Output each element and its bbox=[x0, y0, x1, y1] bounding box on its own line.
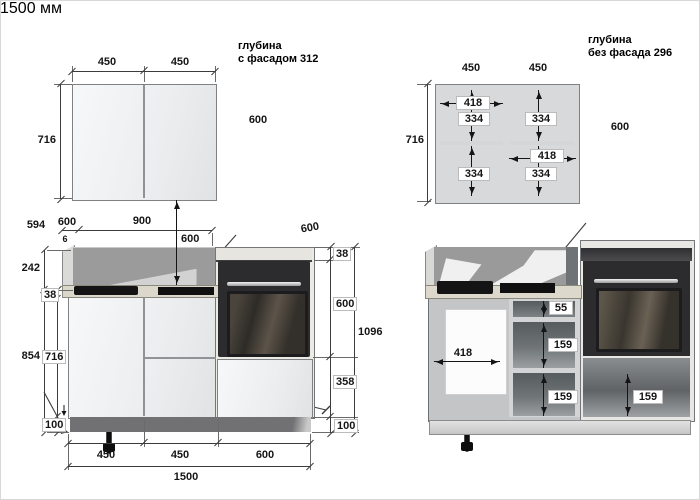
dim-arrow-gap-600 bbox=[176, 200, 177, 285]
note-line2: без фасада 296 bbox=[588, 47, 672, 60]
note-line1: глубина bbox=[238, 40, 318, 53]
dim-716: 716 bbox=[398, 134, 424, 146]
dim-chain-right bbox=[330, 247, 331, 433]
title-box: 1500 мм bbox=[0, 0, 700, 18]
ext-line bbox=[313, 417, 358, 418]
note-depth-no-facade: глубина без фасада 296 bbox=[588, 34, 672, 60]
oven-glass bbox=[227, 291, 308, 357]
plinth bbox=[70, 417, 311, 432]
ext-line bbox=[212, 233, 213, 246]
front-divider-horizontal bbox=[145, 357, 216, 359]
dim-arrow-159 bbox=[543, 374, 544, 416]
dim-854: 854 bbox=[16, 350, 40, 362]
plinth bbox=[429, 420, 691, 435]
dim-line-top bbox=[62, 230, 212, 231]
dim-1500: 1500 bbox=[164, 471, 208, 483]
dim-334: 334 bbox=[525, 167, 557, 181]
dim-159: 159 bbox=[548, 390, 578, 404]
dim-line-height bbox=[427, 84, 428, 202]
cooktop bbox=[500, 283, 555, 293]
dim-38: 38 bbox=[333, 247, 351, 261]
dim-1096: 1096 bbox=[358, 326, 388, 338]
sink bbox=[74, 286, 138, 295]
dim-arrow-159 bbox=[627, 374, 628, 416]
dim-159: 159 bbox=[633, 390, 663, 404]
dim-334: 334 bbox=[458, 112, 490, 126]
dim-6-arrowhead bbox=[62, 411, 67, 416]
oven-drawer-front bbox=[217, 359, 313, 418]
dim-450: 450 bbox=[87, 56, 127, 68]
oven-housing-top-band bbox=[581, 248, 692, 261]
faucet-base bbox=[461, 442, 473, 451]
dim-6: 6 bbox=[59, 233, 71, 245]
oven-housing-top bbox=[216, 248, 312, 262]
page-title: 1500 мм bbox=[0, 0, 62, 17]
note-line2: с фасадом 312 bbox=[238, 53, 318, 66]
oven-lower-opening bbox=[583, 358, 690, 417]
dim-159: 159 bbox=[548, 338, 578, 352]
dim-418: 418 bbox=[448, 347, 478, 359]
drawing-canvas: 1500 мм 450 450 716 600 глубина с фасадо… bbox=[0, 0, 700, 500]
dim-arrow-55 bbox=[543, 301, 544, 317]
dim-418: 418 bbox=[530, 149, 564, 163]
oven-handle bbox=[227, 282, 301, 286]
dim-450: 450 bbox=[518, 62, 558, 74]
dim-gap-600: 600 bbox=[181, 233, 207, 245]
dim-900: 900 bbox=[124, 215, 160, 227]
dim-334: 334 bbox=[525, 112, 557, 126]
backsplash-highlight bbox=[487, 250, 573, 287]
ext-line bbox=[313, 357, 358, 358]
dim-line-height bbox=[60, 84, 61, 199]
dim-242: 242 bbox=[16, 262, 40, 274]
dim-600-depth: 600 bbox=[50, 216, 84, 228]
backsplash bbox=[73, 247, 215, 288]
dim-450: 450 bbox=[451, 62, 491, 74]
dim-358: 358 bbox=[333, 375, 357, 389]
dim-716: 716 bbox=[30, 134, 56, 146]
dim-shelf-600: 600 bbox=[600, 121, 640, 133]
dim-line-segments bbox=[68, 443, 310, 444]
dim-55: 55 bbox=[549, 301, 573, 315]
dim-100: 100 bbox=[334, 419, 358, 433]
wall-cabinet-door-divider bbox=[143, 85, 145, 198]
dim-line-total-height bbox=[354, 247, 355, 433]
dim-594: 594 bbox=[24, 219, 48, 231]
dim-tick bbox=[322, 406, 330, 414]
dim-716: 716 bbox=[42, 350, 66, 364]
oven-handle bbox=[594, 279, 678, 283]
dim-line-total-width bbox=[68, 466, 310, 467]
dim-450: 450 bbox=[160, 449, 200, 461]
dim-600: 600 bbox=[242, 449, 288, 461]
note-depth-facade: глубина с фасадом 312 bbox=[238, 40, 318, 66]
ext-line bbox=[54, 84, 72, 85]
dim-shelf-600: 600 bbox=[238, 114, 278, 126]
dim-38: 38 bbox=[41, 288, 59, 302]
dim-arrow-418 bbox=[434, 361, 500, 362]
backsplash-shadow bbox=[566, 247, 578, 287]
dim-arrow-159 bbox=[543, 323, 544, 368]
oven-glass bbox=[596, 288, 682, 352]
ext-line bbox=[47, 250, 71, 251]
dim-600: 600 bbox=[333, 297, 357, 311]
dim-334: 334 bbox=[458, 167, 490, 181]
dim-418: 418 bbox=[456, 96, 490, 110]
dim-450: 450 bbox=[86, 449, 126, 461]
dim-450: 450 bbox=[160, 56, 200, 68]
cooktop bbox=[158, 287, 214, 295]
dim-chain-left-outer bbox=[44, 250, 45, 432]
dim-100: 100 bbox=[42, 418, 66, 432]
sink bbox=[437, 281, 493, 294]
note-line1: глубина bbox=[588, 34, 672, 47]
